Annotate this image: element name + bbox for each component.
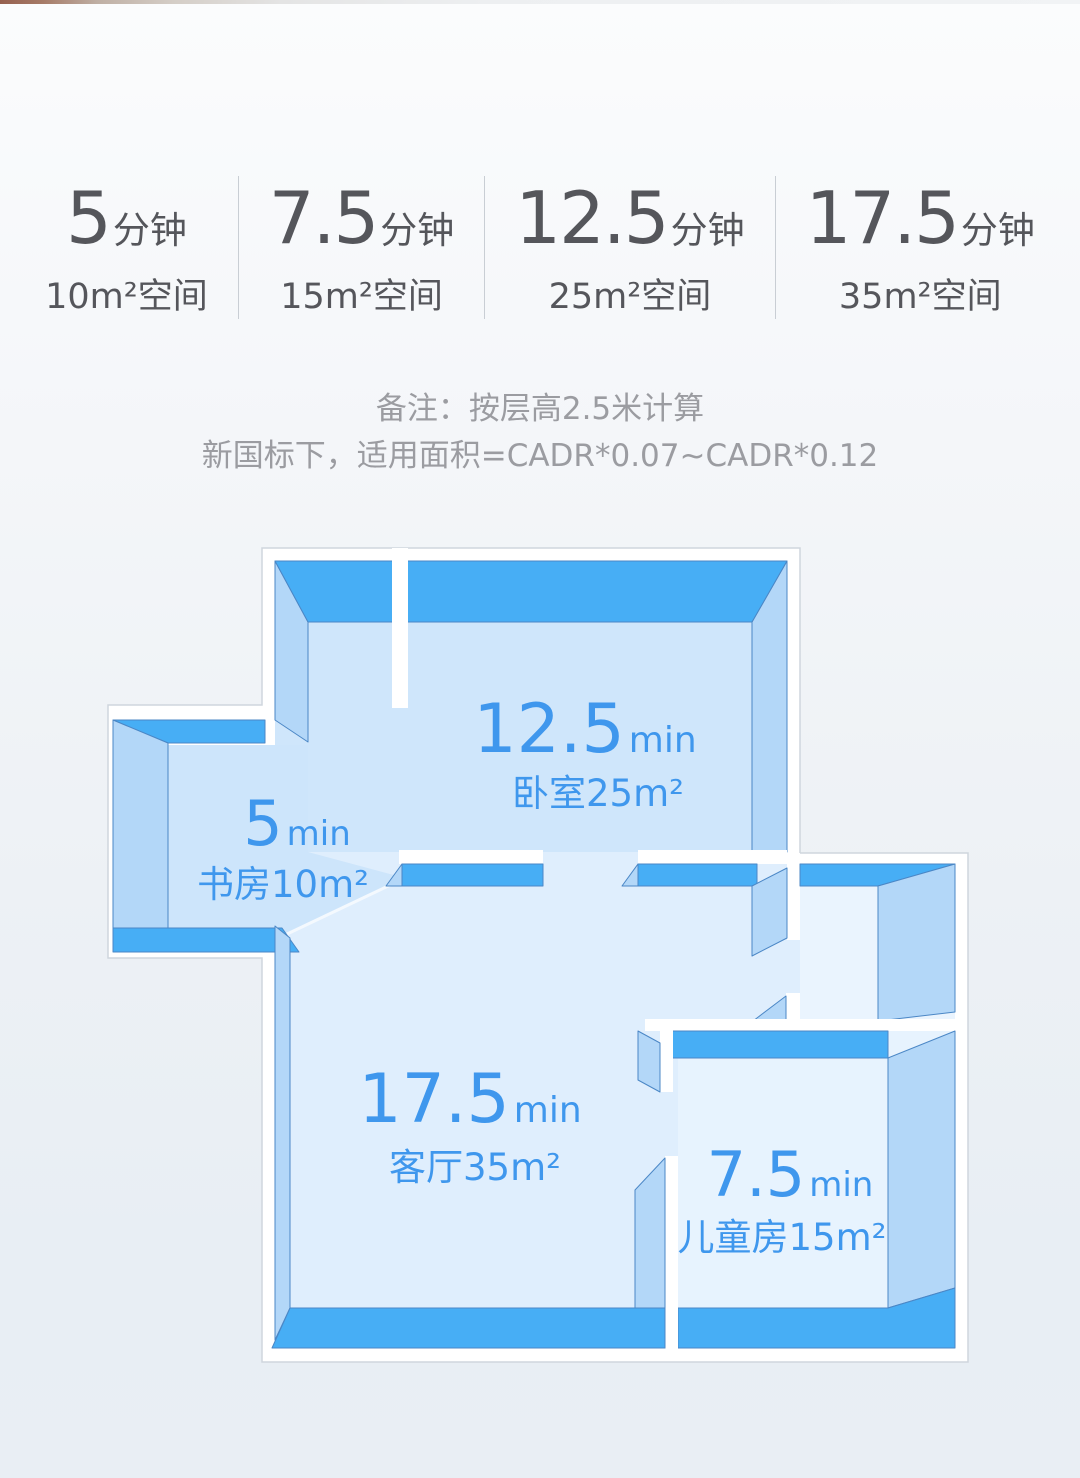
bedroom-bottom-wall-right bbox=[638, 864, 757, 886]
bedroom-bottom-wall-left-border bbox=[399, 850, 543, 864]
kids-top-wall-border bbox=[645, 1019, 955, 1031]
kids-left-wall-upper-border bbox=[660, 1019, 673, 1092]
study-left-wall-face bbox=[113, 720, 168, 928]
floor-plan: 12.5min 卧室25m² 5min 书房10m² 17.5min 客厅35m… bbox=[0, 0, 1080, 1478]
study-name-label: 书房10m² bbox=[197, 863, 369, 906]
bedroom-bottom-wall-right-border bbox=[638, 850, 787, 864]
hall-right-wall-face bbox=[878, 864, 955, 1021]
living-name-label: 客厅35m² bbox=[389, 1146, 561, 1189]
kids-name-label: 儿童房15m² bbox=[678, 1216, 887, 1259]
hall-wall-border-upper bbox=[787, 853, 800, 940]
bedroom-bottom-wall-left bbox=[402, 864, 543, 886]
living-bottom-wall bbox=[272, 1308, 665, 1348]
bedroom-name-label: 卧室25m² bbox=[512, 772, 684, 815]
kids-right-wall-face bbox=[888, 1031, 955, 1308]
bedroom-partition-gap bbox=[392, 548, 408, 708]
kids-left-wall-border bbox=[665, 1156, 678, 1356]
living-left-wall-face bbox=[275, 926, 290, 1340]
bedroom-top-wall bbox=[275, 561, 787, 622]
kids-top-wall bbox=[671, 1031, 888, 1058]
hall-wall-border-lower bbox=[786, 993, 800, 1021]
study-bottom-wall bbox=[113, 928, 299, 952]
product-infographic: 5分钟 10m²空间 7.5分钟 15m²空间 12.5分钟 25m²空间 17… bbox=[0, 0, 1080, 1478]
